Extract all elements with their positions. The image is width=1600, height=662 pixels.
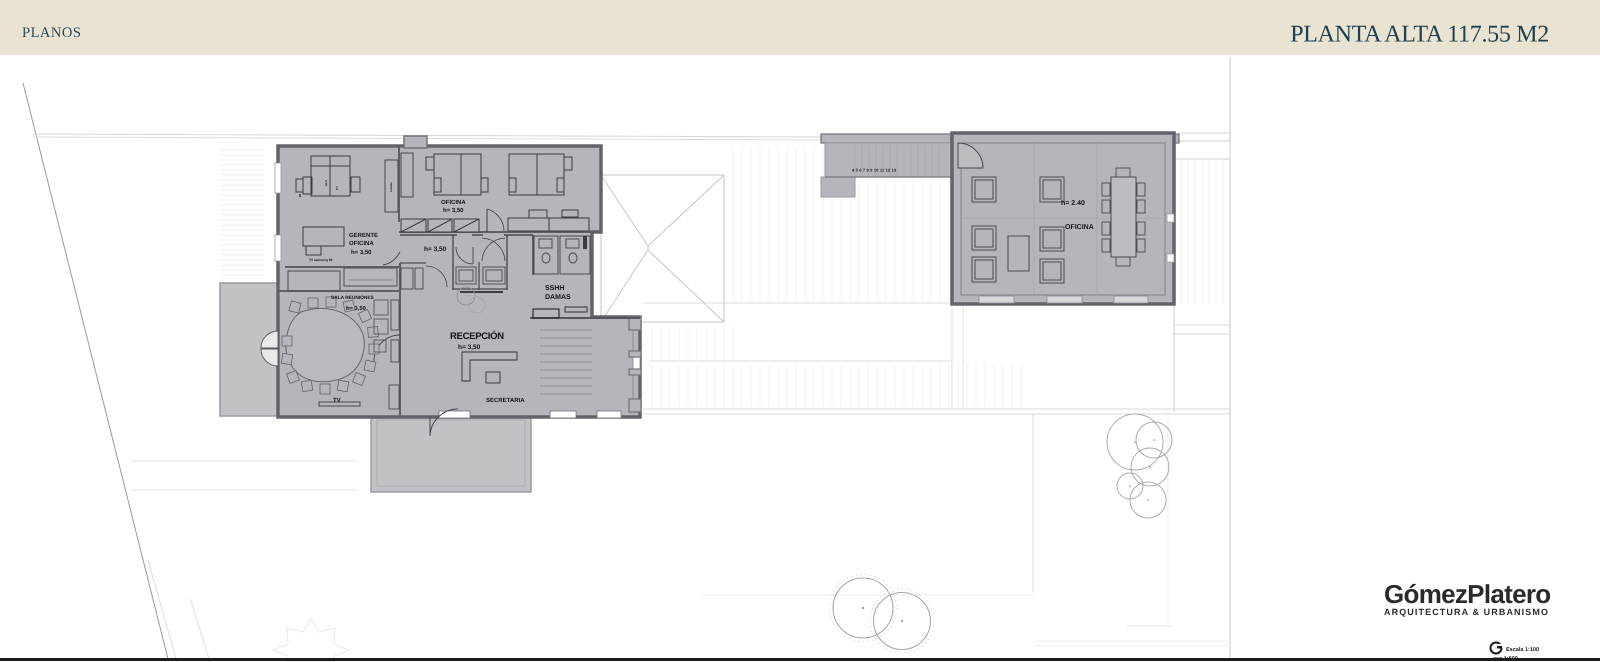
svg-text:h= 3,50: h= 3,50 [424, 246, 447, 253]
svg-text:TV samsung 50: TV samsung 50 [309, 258, 333, 262]
svg-text:1.0: 1.0 [335, 186, 339, 191]
svg-text:0.75: 0.75 [324, 180, 328, 186]
svg-text:GómezPlatero: GómezPlatero [1384, 579, 1550, 609]
svg-text:h= 3,50: h= 3,50 [443, 207, 464, 214]
svg-text:DAMAS: DAMAS [545, 294, 571, 301]
svg-text:h= 3,50: h= 3,50 [351, 249, 372, 256]
svg-text:ARQUITECTURA & URBANISMO: ARQUITECTURA & URBANISMO [1384, 607, 1549, 617]
svg-text:h= 3,50: h= 3,50 [346, 305, 366, 312]
svg-text:4 5 6 7 8 9 10 11 12 13: 4 5 6 7 8 9 10 11 12 13 [852, 168, 897, 173]
svg-text:SECRETARIA: SECRETARIA [486, 397, 525, 404]
svg-text:estante: estante [389, 182, 393, 192]
svg-text:80: 80 [298, 194, 302, 198]
svg-text:SSHH: SSHH [545, 285, 564, 292]
svg-text:OFICINA: OFICINA [441, 199, 466, 206]
svg-text:PLANTA ALTA 117.55 M2: PLANTA ALTA 117.55 M2 [1290, 22, 1549, 48]
svg-text:PLANOS: PLANOS [22, 25, 81, 41]
svg-text:GERENTE: GERENTE [349, 232, 378, 239]
svg-text:OFICINA: OFICINA [1065, 224, 1094, 231]
svg-text:h= 2.40: h= 2.40 [1061, 199, 1085, 207]
svg-text:RECEPCIÓN: RECEPCIÓN [450, 330, 504, 342]
svg-text:Escala 1:100: Escala 1:100 [1506, 647, 1539, 653]
svg-text:SALA REUNIONES: SALA REUNIONES [331, 295, 375, 301]
svg-text:OFICINA: OFICINA [349, 240, 374, 247]
svg-text:h= 3,50: h= 3,50 [458, 344, 481, 351]
svg-text:TV: TV [333, 397, 341, 404]
